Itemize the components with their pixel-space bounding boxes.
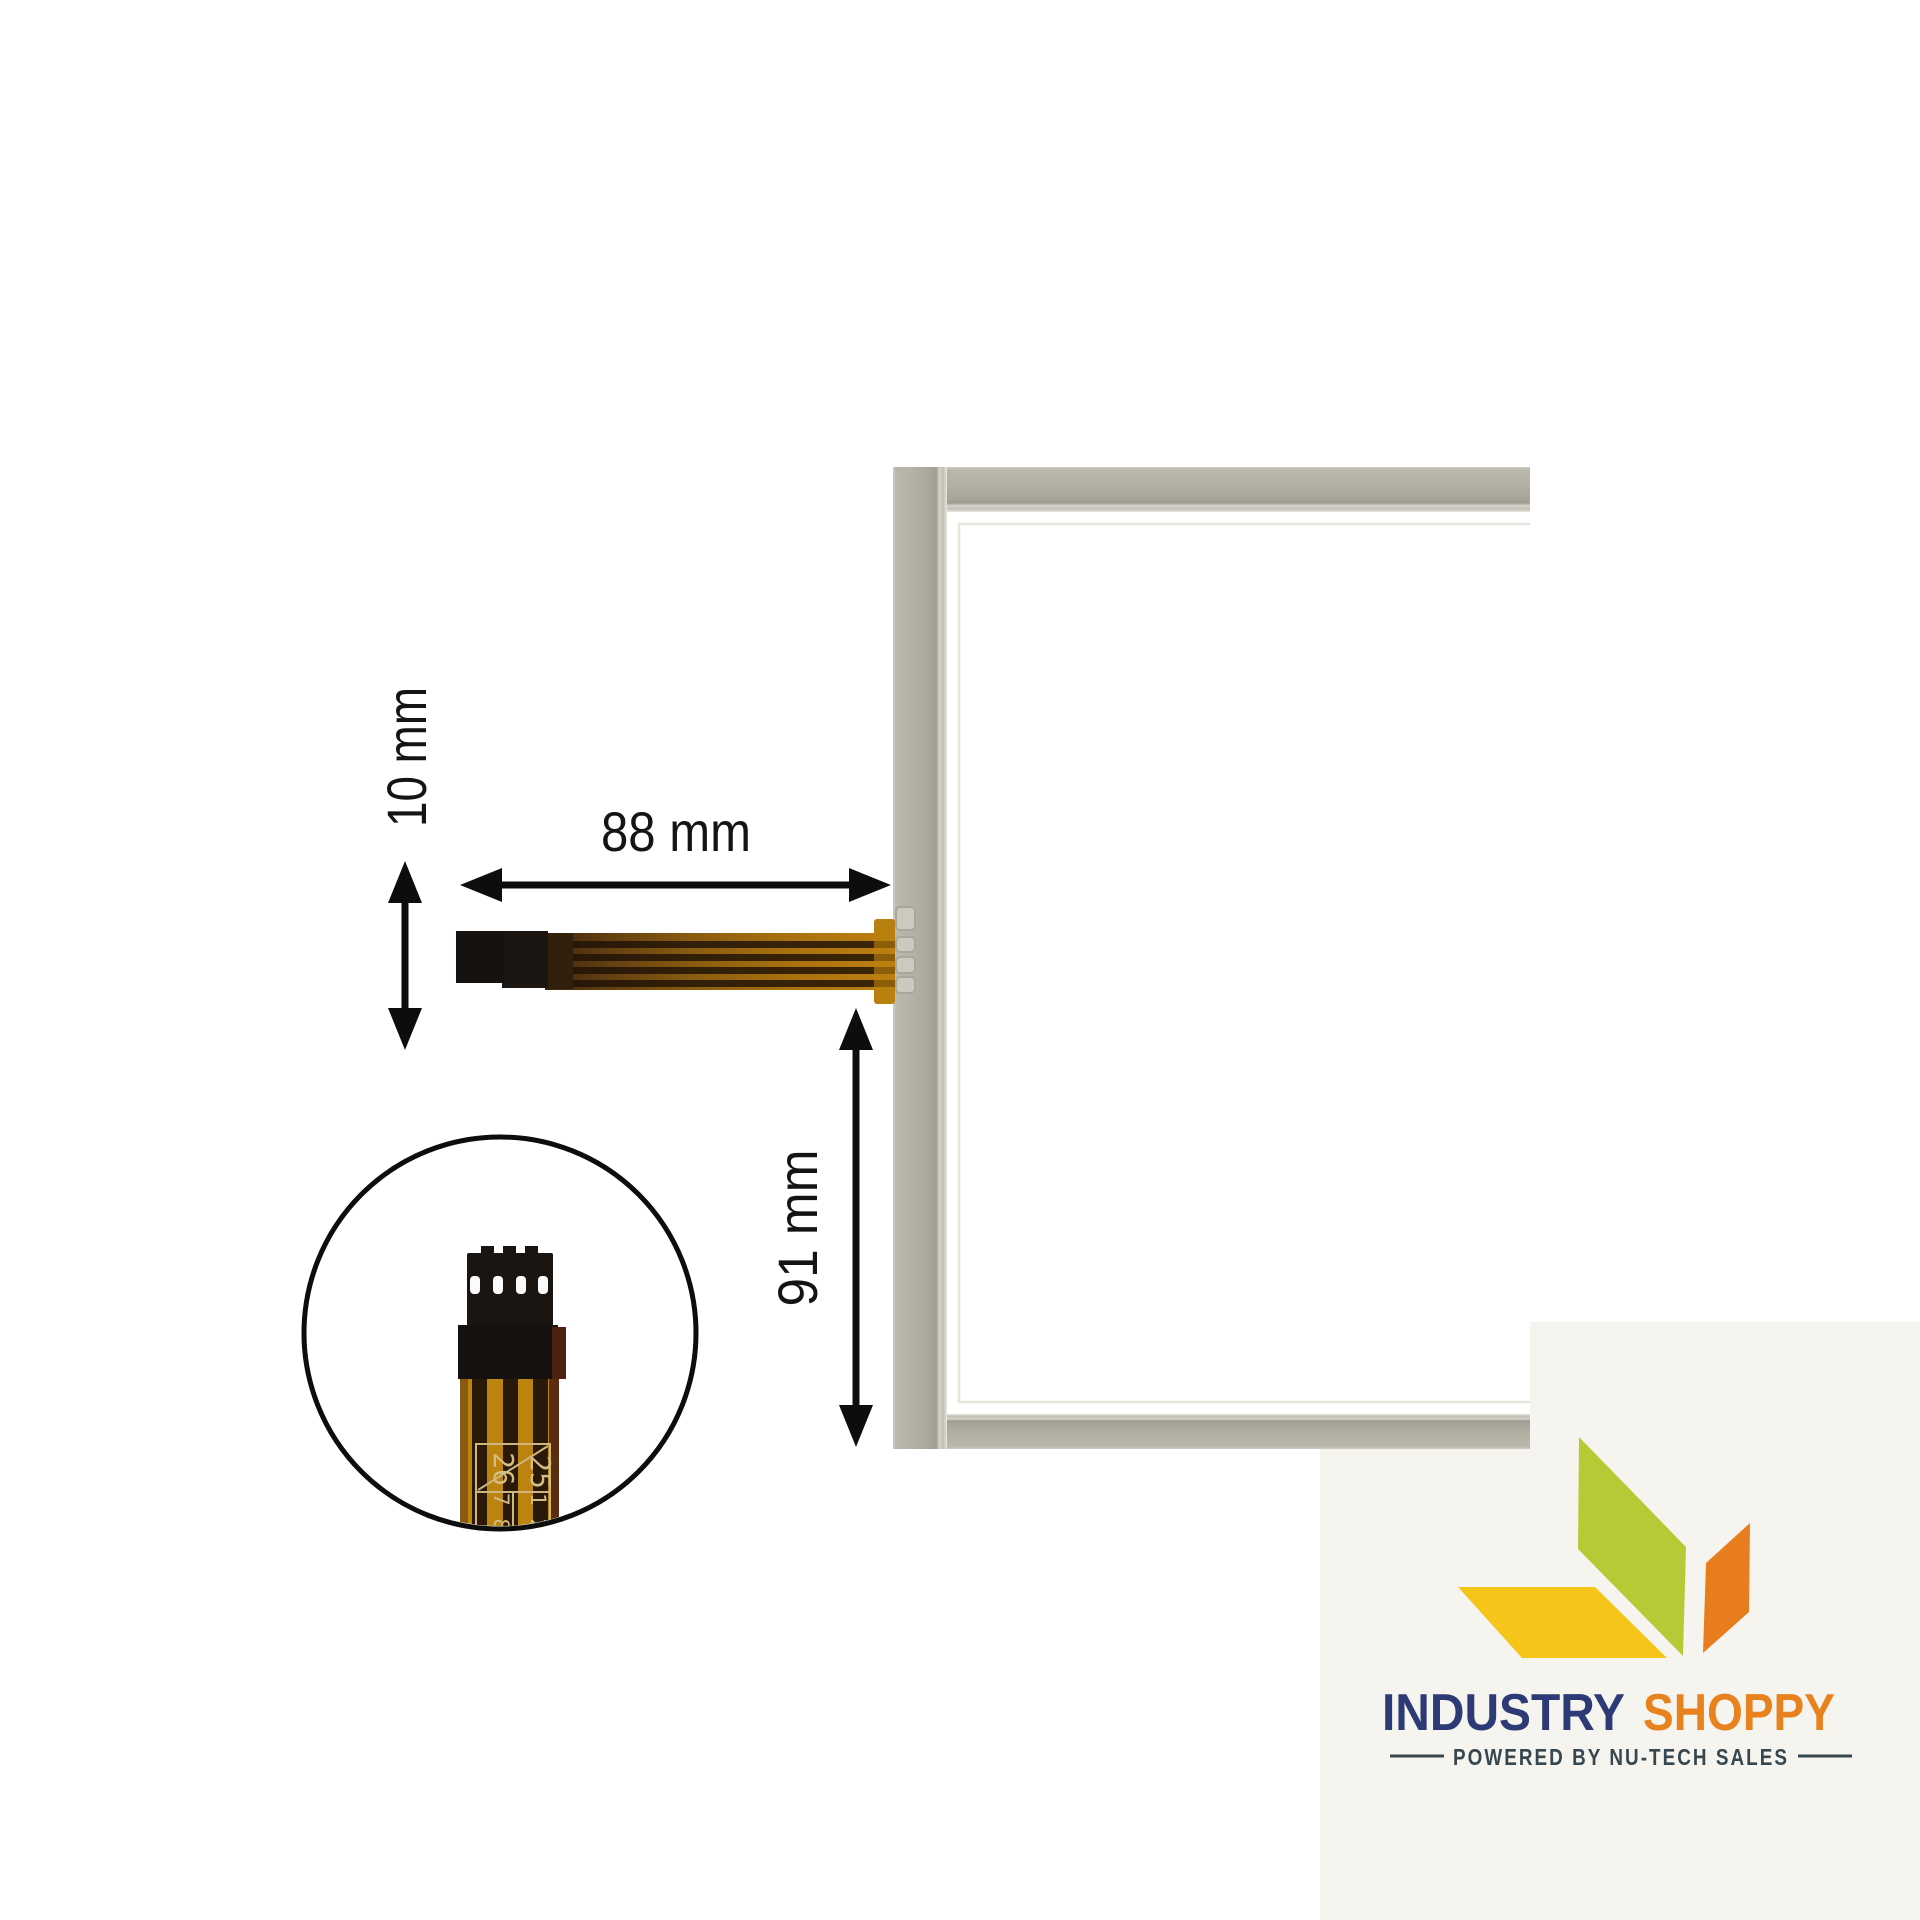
cable-connector-inner (502, 931, 548, 988)
cable-end-tab (874, 919, 895, 1004)
cable-length-label: 88 mm (601, 800, 751, 863)
cable-width-label: 10 mm (375, 687, 438, 827)
pin-marking-top-left: 26 (487, 1452, 520, 1486)
panel-frame-bottom-bar (893, 1414, 1530, 1449)
panel-contact-marks (896, 907, 915, 993)
pin-marking-top-right: 25 (524, 1455, 557, 1489)
product-photo-background (0, 0, 1530, 1449)
tail-offset-label: 91 mm (766, 1150, 829, 1307)
inset-connector-side (552, 1327, 566, 1379)
cable-connector-plug (456, 931, 504, 983)
product-image-canvas: INDUSTRY SHOPPY POWERED BY NU-TECH SALES (0, 0, 1920, 1920)
pin-marking-bottom-left: 7 8 (489, 1493, 513, 1531)
connector-zoom-inset: 26 25 7 8 1 2 (304, 1137, 696, 1531)
product-diagram: INDUSTRY SHOPPY POWERED BY NU-TECH SALES (0, 0, 1920, 1920)
cable-connector-junction (545, 933, 573, 989)
inset-content: 26 25 7 8 1 2 (458, 1246, 566, 1531)
panel-frame-top-bar (893, 467, 1530, 512)
logo-word-shoppy: SHOPPY (1643, 1684, 1835, 1742)
logo-word-industry: INDUSTRY (1382, 1684, 1625, 1742)
inset-connector-plug (458, 1246, 558, 1379)
logo-tagline: POWERED BY NU-TECH SALES (1453, 1744, 1789, 1770)
